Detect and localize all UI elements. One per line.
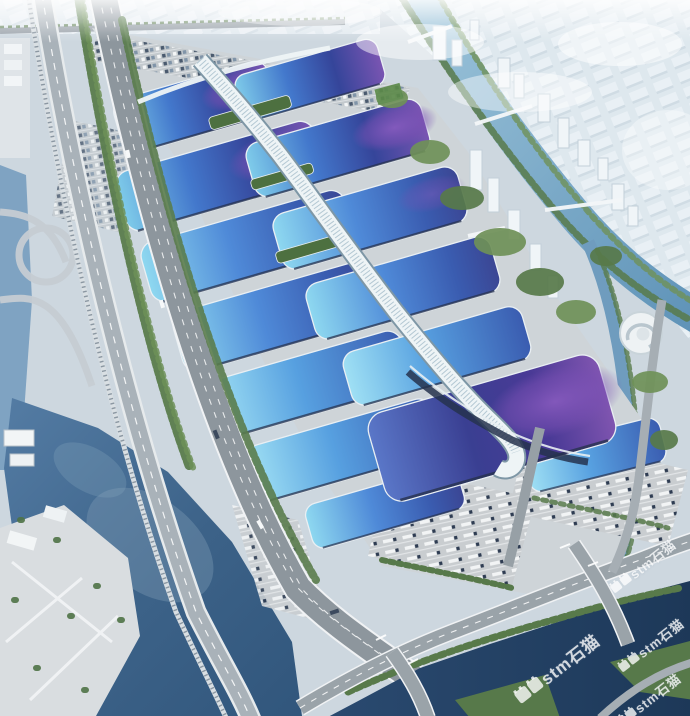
- aerial-rendering: stm石猫 const data = JSON.parse(document.g…: [0, 0, 690, 716]
- rendering-scene: [0, 0, 690, 716]
